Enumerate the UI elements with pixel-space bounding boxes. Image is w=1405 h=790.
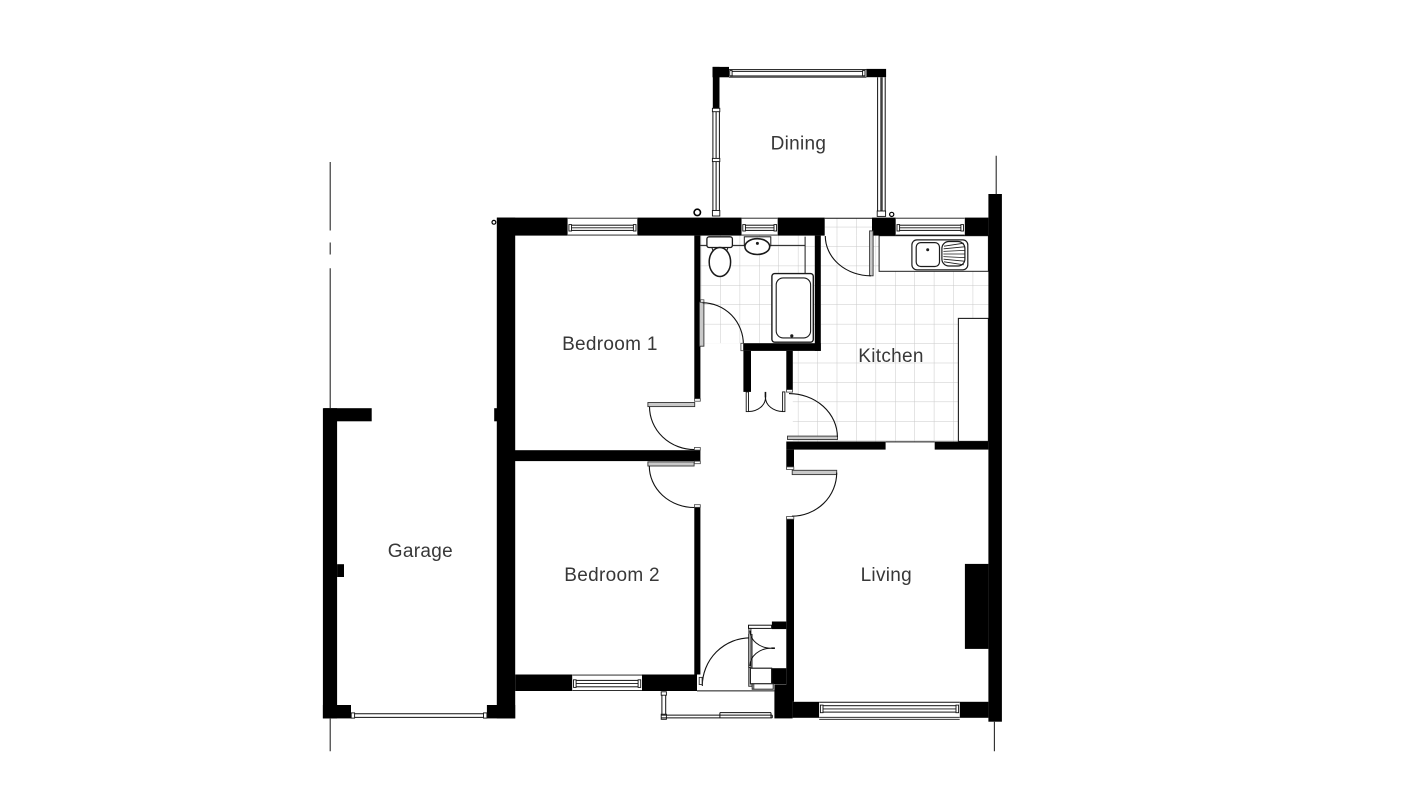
svg-text:Kitchen: Kitchen xyxy=(858,346,923,367)
svg-text:Dining: Dining xyxy=(771,134,827,155)
svg-text:Bedroom 1: Bedroom 1 xyxy=(562,334,658,355)
svg-text:Garage: Garage xyxy=(388,541,453,562)
svg-text:Bedroom 2: Bedroom 2 xyxy=(564,565,660,586)
svg-text:Living: Living xyxy=(861,565,912,586)
